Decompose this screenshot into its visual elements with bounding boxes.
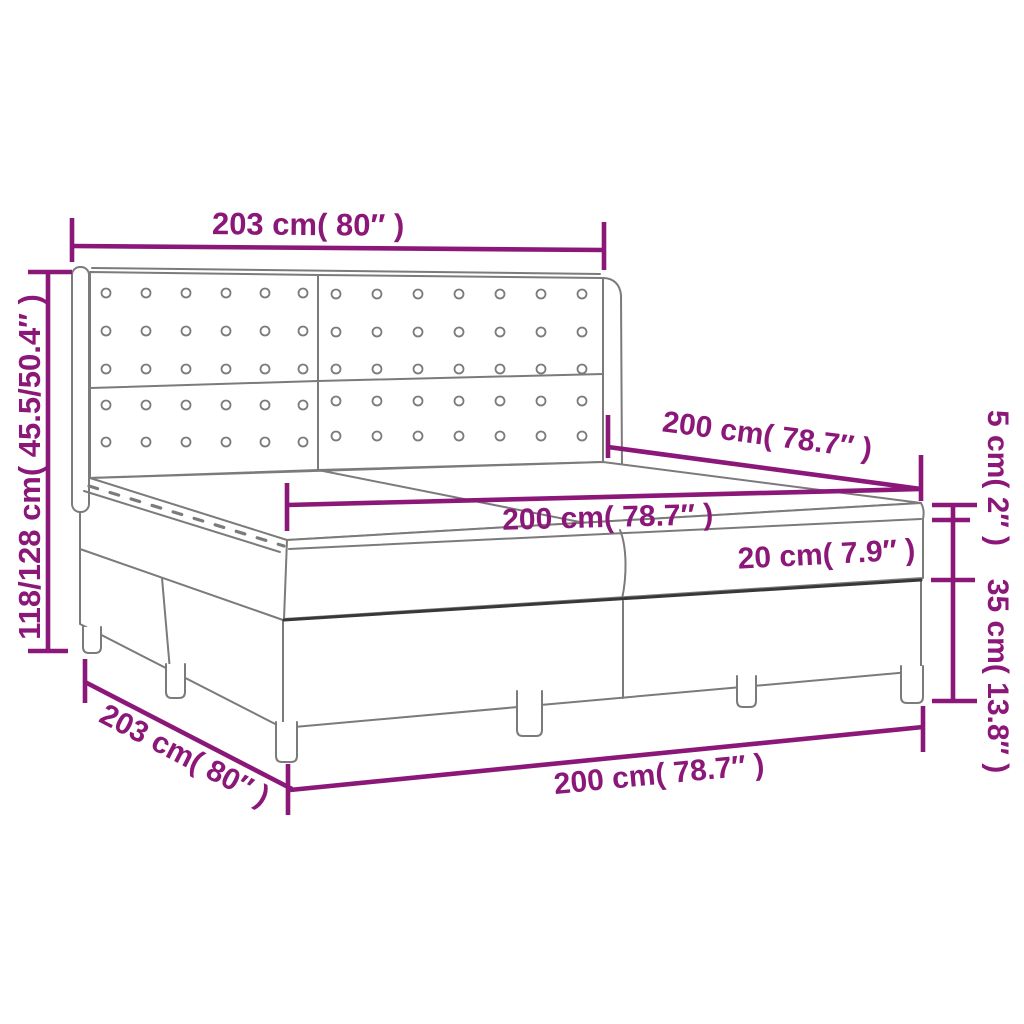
tuft-button — [299, 401, 308, 410]
tuft-button — [332, 432, 341, 441]
bed-leg-fill — [83, 627, 101, 653]
tuft-button — [142, 438, 151, 447]
tuft-button — [373, 397, 382, 406]
dim-label-headboard-height: 118/128 cm( 45.5/50.4″ ) — [12, 294, 47, 640]
tuft-button — [332, 290, 341, 299]
tuft-button — [414, 397, 423, 406]
tuft-button — [578, 365, 587, 374]
tuft-button — [142, 401, 151, 410]
tuft-button — [537, 397, 546, 406]
dim-right-height-stack: 5 cm( 2″ ) 35 cm( 13.8″ ) — [931, 410, 1014, 773]
tuft-button — [332, 397, 341, 406]
dim-label-base-width: 203 cm( 80″ ) — [94, 698, 274, 813]
tuft-button — [102, 327, 111, 336]
tuft-button — [578, 397, 587, 406]
tuft-button — [496, 328, 505, 337]
tuft-button — [332, 365, 341, 374]
tuft-button — [455, 365, 464, 374]
tuft-button — [455, 397, 464, 406]
tuft-button — [182, 289, 191, 298]
tuft-button — [182, 327, 191, 336]
dim-label-topper-thickness: 5 cm( 2″ ) — [981, 410, 1014, 546]
bed-dimension-drawing: 203 cm( 80″ ) 118/128 cm( 45.5/50.4″ ) 2… — [0, 0, 1024, 1024]
tuft-button — [261, 365, 270, 374]
tuft-button — [414, 290, 423, 299]
bed-leg-fill — [517, 691, 542, 736]
headboard-left-wing — [72, 267, 89, 512]
tuft-button — [414, 328, 423, 337]
tuft-button — [102, 401, 111, 410]
bed-leg-fill — [901, 666, 923, 703]
tuft-button — [414, 432, 423, 441]
tuft-button — [222, 401, 231, 410]
tuft-button — [299, 365, 308, 374]
dimension-diagram: 203 cm( 80″ ) 118/128 cm( 45.5/50.4″ ) 2… — [0, 0, 1024, 1024]
dim-label-base-height: 35 cm( 13.8″ ) — [981, 579, 1014, 773]
tuft-button — [222, 327, 231, 336]
tuft-button — [455, 432, 464, 441]
tuft-button — [373, 432, 382, 441]
tuft-button — [537, 290, 546, 299]
tuft-button — [142, 327, 151, 336]
tuft-button — [102, 365, 111, 374]
tuft-button — [102, 289, 111, 298]
dim-label-headboard-width: 203 cm( 80″ ) — [212, 206, 405, 243]
dim-label-mattress-width: 200 cm( 78.7″ ) — [502, 498, 714, 537]
tuft-button — [261, 438, 270, 447]
bed-outline — [72, 267, 924, 762]
tuft-button — [332, 328, 341, 337]
tuft-button — [578, 290, 587, 299]
tuft-button — [373, 290, 382, 299]
tuft-button — [261, 401, 270, 410]
dim-base-length: 200 cm( 78.7″ ) — [288, 706, 923, 815]
tuft-button — [261, 327, 270, 336]
bed-leg-fill — [276, 722, 297, 762]
tuft-button — [537, 432, 546, 441]
tuft-button — [182, 438, 191, 447]
tuft-button — [222, 289, 231, 298]
tuft-button — [182, 401, 191, 410]
tuft-button — [261, 289, 270, 298]
tuft-button — [496, 365, 505, 374]
dim-headboard-width: 203 cm( 80″ ) — [72, 206, 604, 270]
tuft-button — [455, 328, 464, 337]
tuft-button — [373, 365, 382, 374]
tuft-button — [299, 289, 308, 298]
bed-leg-fill — [737, 676, 756, 707]
tuft-button — [142, 289, 151, 298]
tuft-button — [373, 328, 382, 337]
dim-headboard-height: 118/128 cm( 45.5/50.4″ ) — [12, 272, 72, 651]
tuft-button — [182, 365, 191, 374]
tuft-button — [299, 438, 308, 447]
tuft-button — [537, 328, 546, 337]
dim-label-base-length: 200 cm( 78.7″ ) — [552, 748, 765, 801]
dim-line — [72, 246, 604, 250]
bed-leg-fill — [166, 664, 185, 698]
tuft-button — [578, 432, 587, 441]
tuft-button — [455, 290, 464, 299]
tuft-button — [102, 438, 111, 447]
tuft-button — [222, 365, 231, 374]
tuft-button — [142, 365, 151, 374]
tuft-button — [496, 432, 505, 441]
tuft-button — [578, 328, 587, 337]
tuft-button — [496, 290, 505, 299]
tuft-button — [299, 327, 308, 336]
tuft-button — [496, 397, 505, 406]
tuft-button — [537, 365, 546, 374]
tuft-button — [222, 438, 231, 447]
tuft-button — [414, 365, 423, 374]
